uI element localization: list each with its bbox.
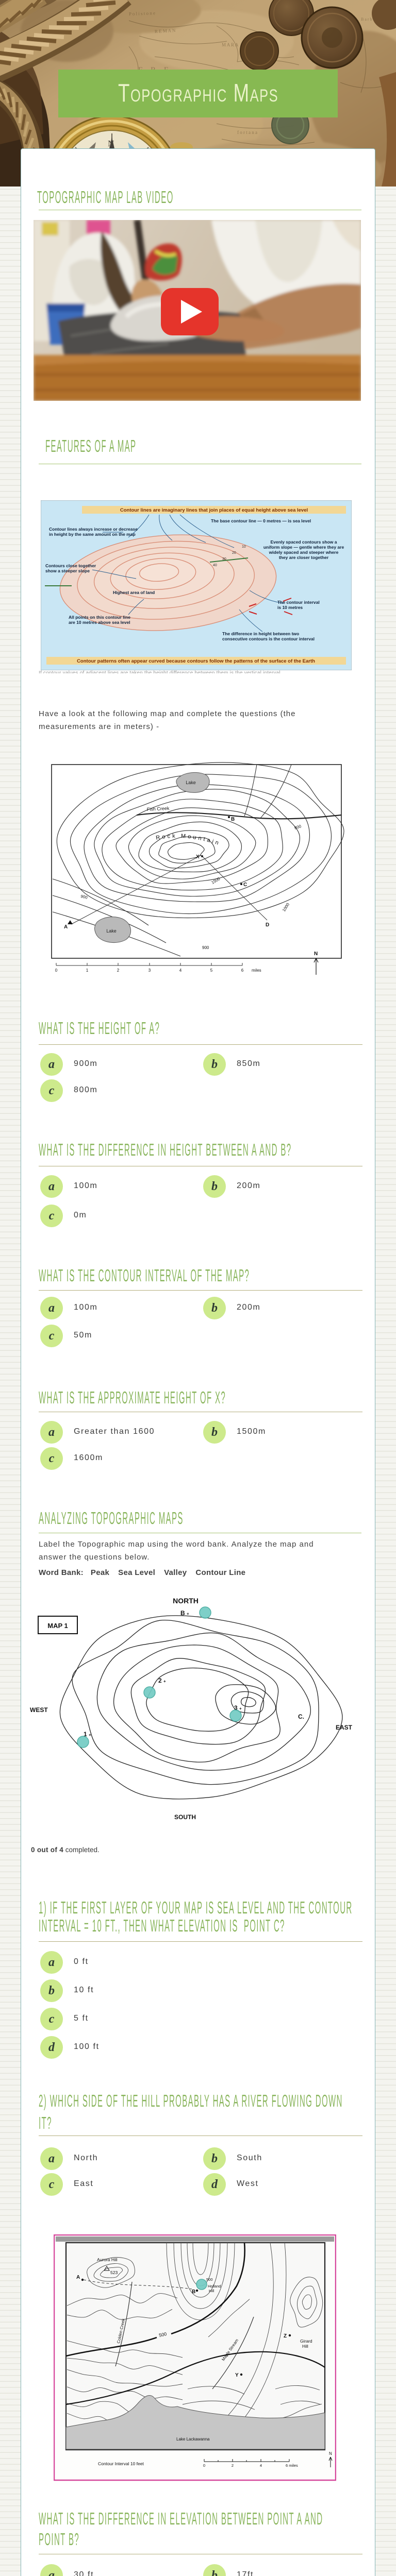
svg-text:Z: Z [284, 2333, 287, 2339]
svg-text:widely spaced and steeper wher: widely spaced and steeper where [269, 550, 339, 555]
svg-text:Contour lines are imaginary li: Contour lines are imaginary lines that j… [120, 507, 308, 513]
svg-text:Contour Interval 10 feet: Contour Interval 10 feet [98, 2461, 144, 2466]
svg-text:Evenly spaced contours show a: Evenly spaced contours show a [271, 539, 337, 545]
svg-text:miles: miles [252, 968, 261, 973]
svg-text:0: 0 [203, 2463, 205, 2468]
svg-text:0: 0 [55, 968, 58, 973]
svg-text:B: B [231, 817, 235, 822]
svg-text:5: 5 [210, 968, 213, 973]
svg-text:2: 2 [117, 968, 120, 973]
svg-text:N: N [329, 2451, 332, 2456]
svg-text:Holland: Holland [208, 2284, 221, 2289]
svg-text:Highest area of land: Highest area of land [113, 590, 155, 595]
svg-text:MAP 1: MAP 1 [47, 1622, 68, 1630]
svg-text:Contour lines always increase: Contour lines always increase or decreas… [49, 527, 138, 532]
svg-text:2: 2 [232, 2463, 234, 2468]
svg-text:The base contour line — 0 metr: The base contour line — 0 metres — is se… [211, 518, 311, 523]
svg-text:4: 4 [260, 2463, 262, 2468]
svg-text:D: D [266, 922, 269, 928]
svg-text:Lake Lackawanna: Lake Lackawanna [176, 2437, 210, 2442]
svg-text:Y: Y [235, 2372, 239, 2378]
svg-text:f o r t a n a: f o r t a n a [237, 130, 257, 135]
svg-text:Aurora Hill: Aurora Hill [97, 2257, 118, 2262]
svg-text:Girard: Girard [300, 2338, 312, 2344]
svg-text:10: 10 [242, 545, 246, 549]
svg-text:they are closer together: they are closer together [279, 555, 329, 560]
svg-text:3: 3 [148, 968, 151, 973]
svg-text:Hill: Hill [209, 2289, 214, 2293]
svg-text:N: N [314, 951, 318, 957]
svg-text:in height by the same amount o: in height by the same amount on the map [49, 532, 136, 537]
svg-text:Contours close together: Contours close together [45, 563, 96, 568]
svg-text:SOUTH: SOUTH [174, 1814, 196, 1821]
svg-text:consecutive contours is the co: consecutive contours is the contour inte… [222, 636, 315, 641]
svg-text:show a steeper slope: show a steeper slope [45, 568, 90, 573]
svg-text:N: N [108, 139, 114, 148]
svg-text:6 miles: 6 miles [286, 2463, 298, 2468]
svg-text:is 10 metres: is 10 metres [277, 605, 303, 610]
svg-text:A: A [76, 2275, 80, 2280]
svg-text:4: 4 [179, 968, 182, 973]
svg-text:Lake: Lake [106, 928, 117, 934]
svg-text:WEST: WEST [30, 1706, 48, 1714]
svg-text:500: 500 [206, 2277, 213, 2282]
svg-text:1: 1 [86, 968, 89, 973]
svg-text:NORTH: NORTH [173, 1597, 199, 1605]
svg-text:Contour patterns often appear: Contour patterns often appear curved bec… [77, 658, 315, 664]
svg-text:B: B [192, 2289, 195, 2295]
svg-text:are 10 metres above sea level: are 10 metres above sea level [69, 620, 130, 625]
svg-text:2 +: 2 + [158, 1677, 166, 1684]
svg-text:M A R A: M A R A [222, 42, 239, 47]
svg-text:C: C [243, 882, 247, 888]
svg-text:All points on this contour lin: All points on this contour line [69, 615, 130, 620]
svg-text:EAST: EAST [336, 1724, 353, 1731]
svg-text:20: 20 [232, 551, 236, 555]
svg-text:523: 523 [110, 2270, 118, 2275]
svg-text:C.: C. [298, 1713, 304, 1720]
svg-text:Hill: Hill [302, 2344, 308, 2349]
svg-text:6: 6 [241, 968, 244, 973]
svg-text:B +: B + [180, 1609, 189, 1617]
svg-text:A: A [64, 924, 68, 930]
svg-text:Lake: Lake [186, 780, 196, 785]
svg-text:The contour interval: The contour interval [277, 600, 320, 605]
svg-text:900: 900 [202, 945, 209, 950]
svg-text:The difference in height betwe: The difference in height between two [222, 631, 299, 636]
svg-text:uniform slope — gentle where t: uniform slope — gentle where they are [263, 545, 344, 550]
svg-text:40: 40 [213, 564, 217, 567]
svg-text:P o l i s t o n e: P o l i s t o n e [129, 10, 155, 16]
